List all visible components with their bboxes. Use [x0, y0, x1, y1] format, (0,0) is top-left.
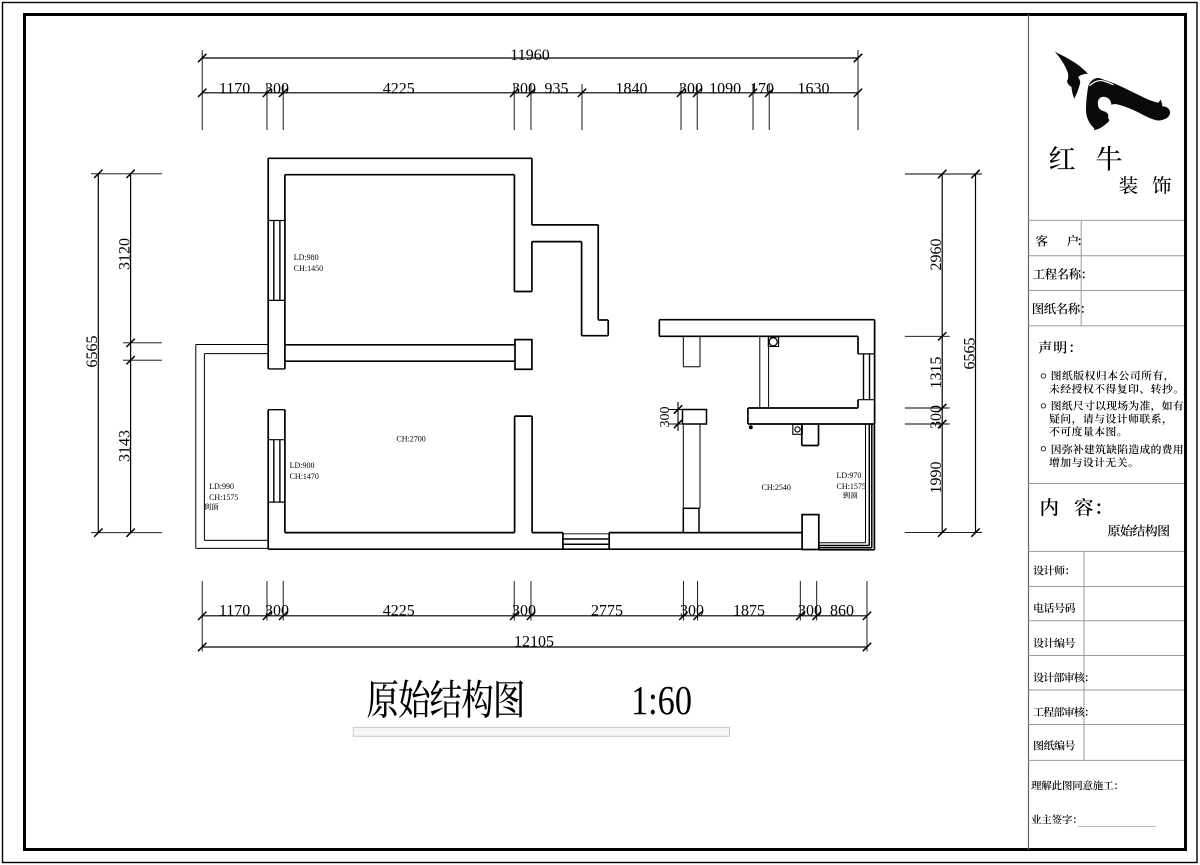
- svg-text:LD:990: LD:990: [209, 482, 234, 491]
- svg-text:11960: 11960: [510, 47, 549, 64]
- svg-text:3120: 3120: [116, 238, 133, 270]
- svg-text:935: 935: [545, 80, 569, 97]
- svg-text:3143: 3143: [116, 430, 133, 462]
- svg-text:300: 300: [798, 602, 822, 619]
- svg-text:LD:980: LD:980: [294, 253, 319, 262]
- svg-text:1630: 1630: [798, 80, 830, 97]
- svg-text:1170: 1170: [219, 602, 250, 619]
- svg-text:1840: 1840: [616, 80, 648, 97]
- svg-text:4225: 4225: [383, 80, 415, 97]
- svg-text:1090: 1090: [709, 80, 741, 97]
- svg-text:860: 860: [830, 602, 854, 619]
- svg-text:2960: 2960: [928, 239, 945, 271]
- svg-text:1:60: 1:60: [631, 677, 692, 723]
- svg-text:300: 300: [928, 405, 945, 429]
- svg-text:4225: 4225: [383, 602, 415, 619]
- svg-text:CH:1575: CH:1575: [209, 493, 238, 502]
- svg-text:300: 300: [265, 602, 289, 619]
- svg-text:6565: 6565: [961, 338, 978, 370]
- svg-text:LD:900: LD:900: [290, 461, 315, 470]
- svg-text:12105: 12105: [514, 634, 554, 651]
- svg-text:1170: 1170: [219, 80, 250, 97]
- svg-text:300: 300: [265, 80, 289, 97]
- svg-text:1315: 1315: [928, 357, 945, 389]
- svg-text:300: 300: [679, 80, 703, 97]
- svg-text:300: 300: [512, 602, 536, 619]
- svg-text:CH:1575: CH:1575: [837, 482, 866, 491]
- svg-text:LD:970: LD:970: [837, 471, 862, 480]
- svg-text:CH:2540: CH:2540: [762, 483, 791, 492]
- svg-text:1990: 1990: [928, 462, 945, 494]
- svg-text:300: 300: [658, 407, 673, 428]
- svg-text:CH:1470: CH:1470: [290, 472, 319, 481]
- svg-text:1875: 1875: [733, 602, 765, 619]
- svg-text:CH:2700: CH:2700: [396, 435, 425, 444]
- svg-text:300: 300: [512, 80, 536, 97]
- svg-text:2775: 2775: [591, 602, 623, 619]
- svg-text:CH:1450: CH:1450: [294, 264, 323, 273]
- svg-text:6565: 6565: [84, 336, 101, 368]
- svg-text:300: 300: [680, 602, 704, 619]
- svg-text:170: 170: [750, 80, 774, 97]
